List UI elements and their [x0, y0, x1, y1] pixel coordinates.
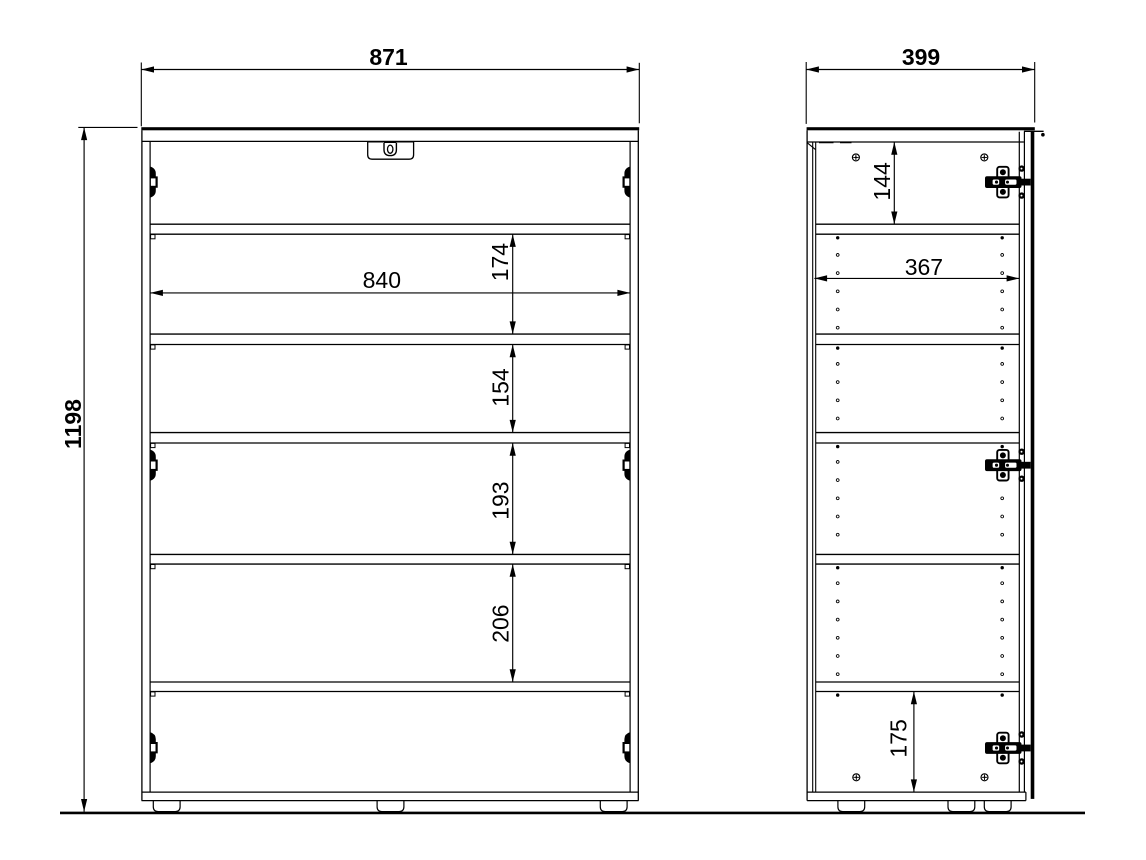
svg-text:871: 871: [369, 44, 408, 70]
svg-text:399: 399: [902, 44, 940, 70]
svg-text:840: 840: [363, 267, 401, 293]
svg-text:175: 175: [886, 719, 912, 757]
svg-text:154: 154: [487, 368, 513, 407]
svg-text:174: 174: [487, 243, 513, 282]
svg-text:193: 193: [487, 481, 513, 519]
svg-text:144: 144: [869, 162, 895, 201]
svg-text:1198: 1198: [60, 399, 86, 449]
svg-text:367: 367: [905, 254, 943, 280]
svg-text:206: 206: [487, 604, 513, 642]
